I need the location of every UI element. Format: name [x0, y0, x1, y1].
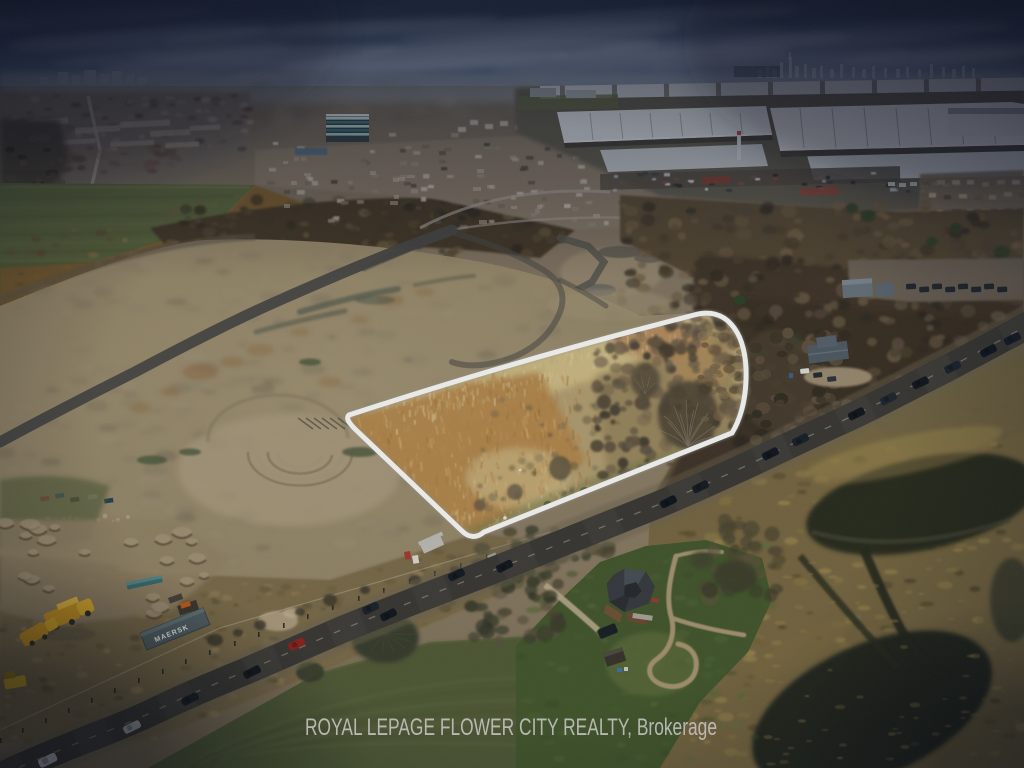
svg-text:ROYAL LEPAGE FLOWER CITY REALT: ROYAL LEPAGE FLOWER CITY REALTY, Brokera… [305, 714, 717, 741]
